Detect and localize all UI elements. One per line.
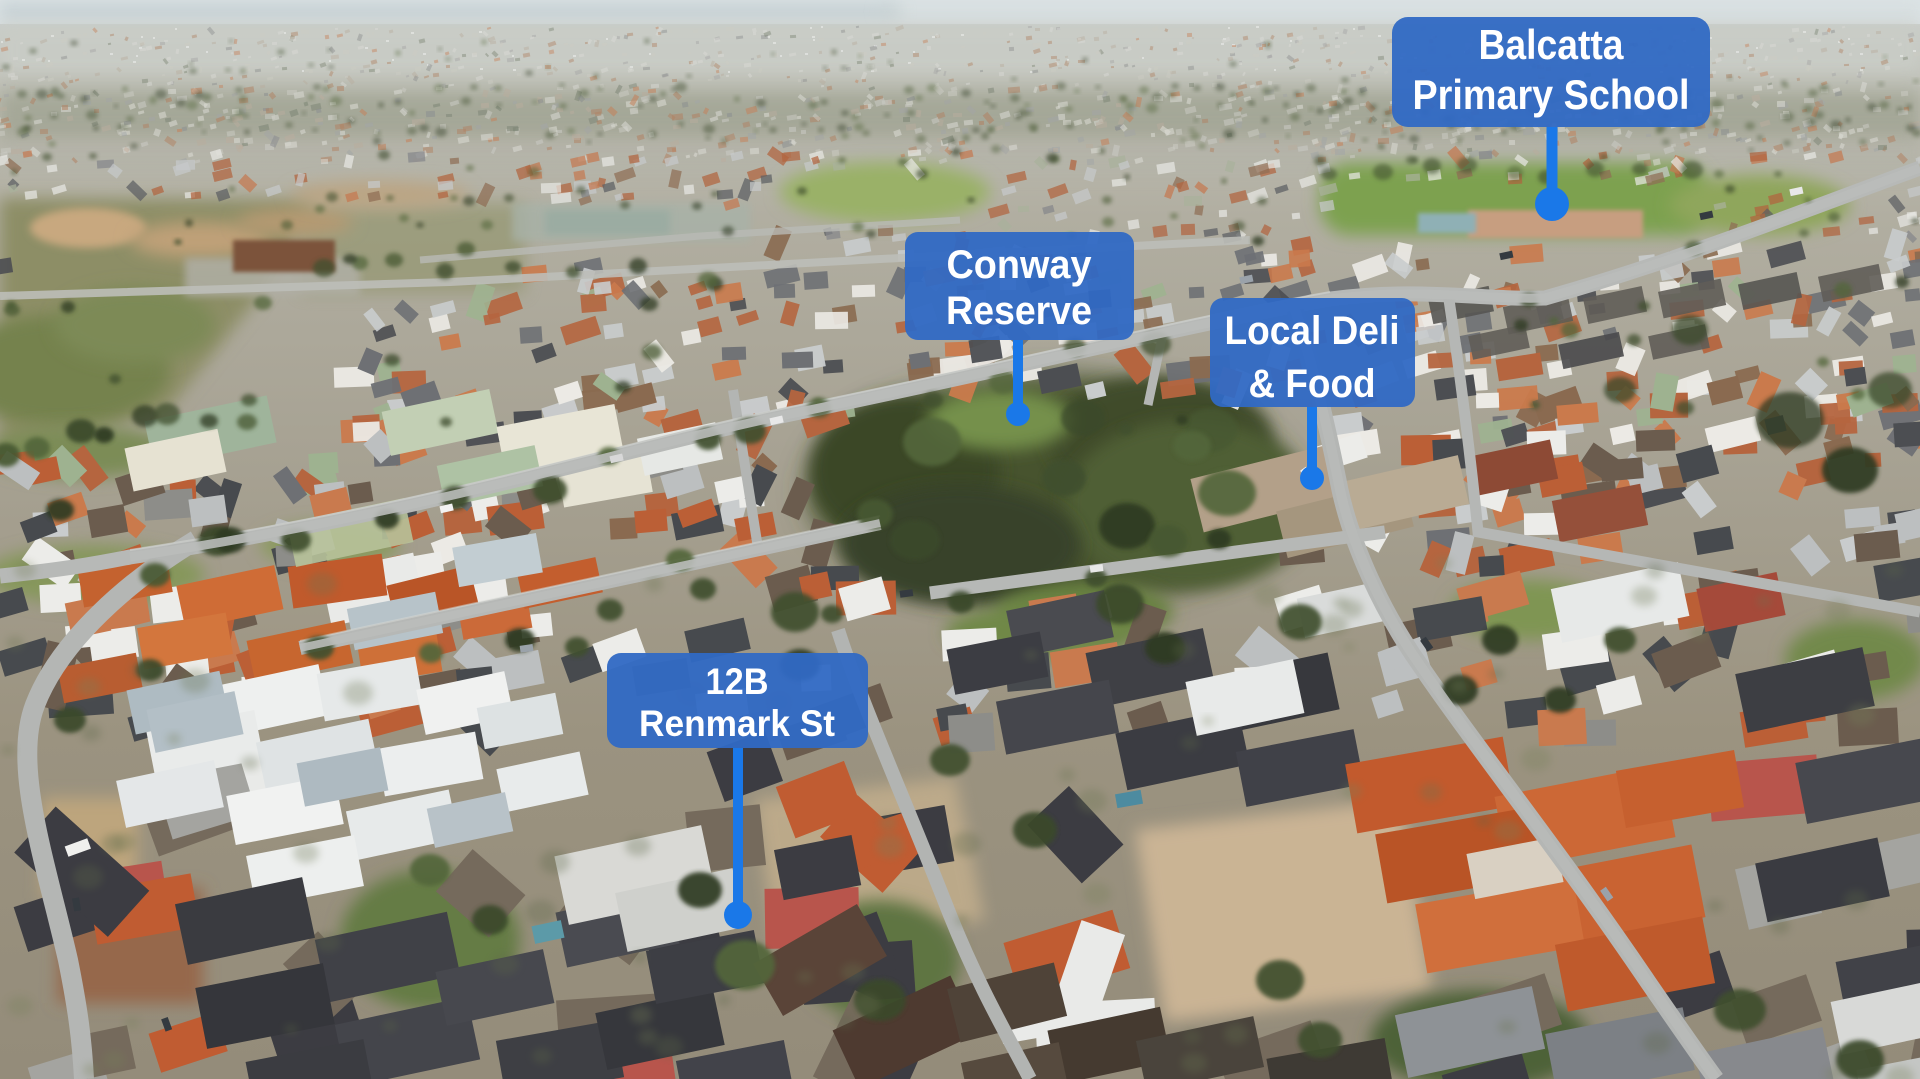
svg-text:12B: 12B [706,661,769,702]
svg-text:Balcatta: Balcatta [1479,21,1625,68]
svg-text:Reserve: Reserve [946,289,1092,333]
svg-text:Conway: Conway [947,243,1093,287]
svg-text:Local Deli: Local Deli [1225,309,1400,353]
svg-text:Renmark St: Renmark St [639,703,835,744]
svg-text:& Food: & Food [1249,362,1376,406]
svg-text:Primary School: Primary School [1413,71,1690,118]
